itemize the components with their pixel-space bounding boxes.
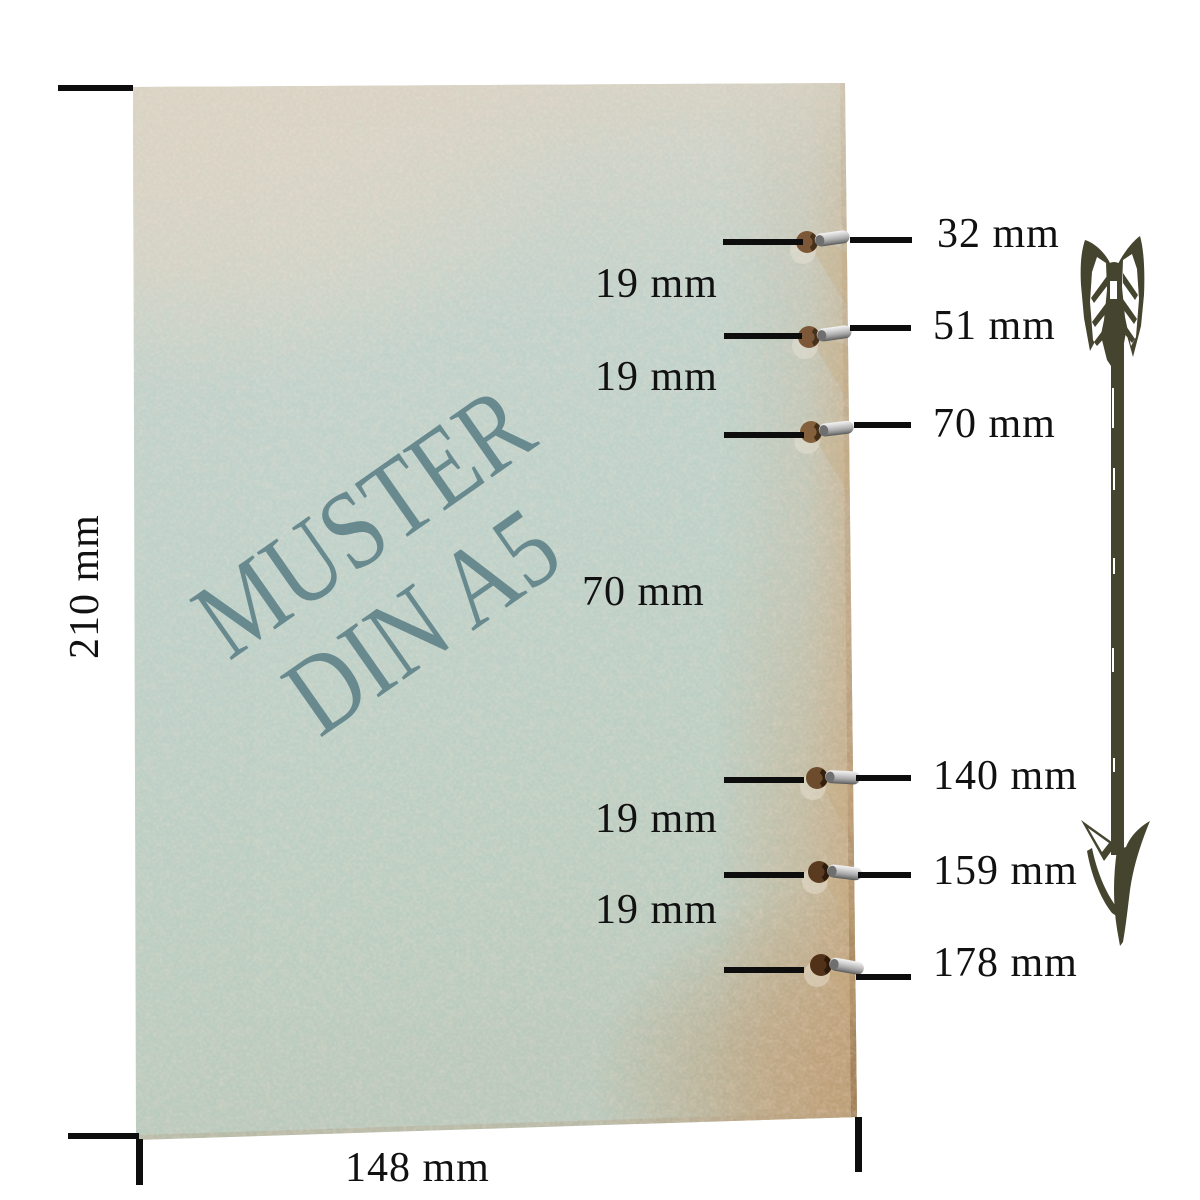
svg-text:148 mm: 148 mm (345, 1145, 490, 1191)
svg-text:159 mm: 159 mm (933, 848, 1078, 894)
svg-text:178 mm: 178 mm (933, 940, 1078, 986)
svg-text:70 mm: 70 mm (582, 569, 705, 615)
svg-text:19 mm: 19 mm (595, 354, 718, 400)
svg-text:19 mm: 19 mm (595, 261, 718, 307)
svg-text:19 mm: 19 mm (595, 887, 718, 933)
svg-text:32 mm: 32 mm (937, 211, 1060, 257)
svg-text:51 mm: 51 mm (933, 303, 1056, 349)
svg-text:140 mm: 140 mm (933, 753, 1078, 799)
svg-text:19 mm: 19 mm (595, 796, 718, 842)
svg-text:70 mm: 70 mm (933, 401, 1056, 447)
svg-text:210 mm: 210 mm (62, 514, 108, 659)
